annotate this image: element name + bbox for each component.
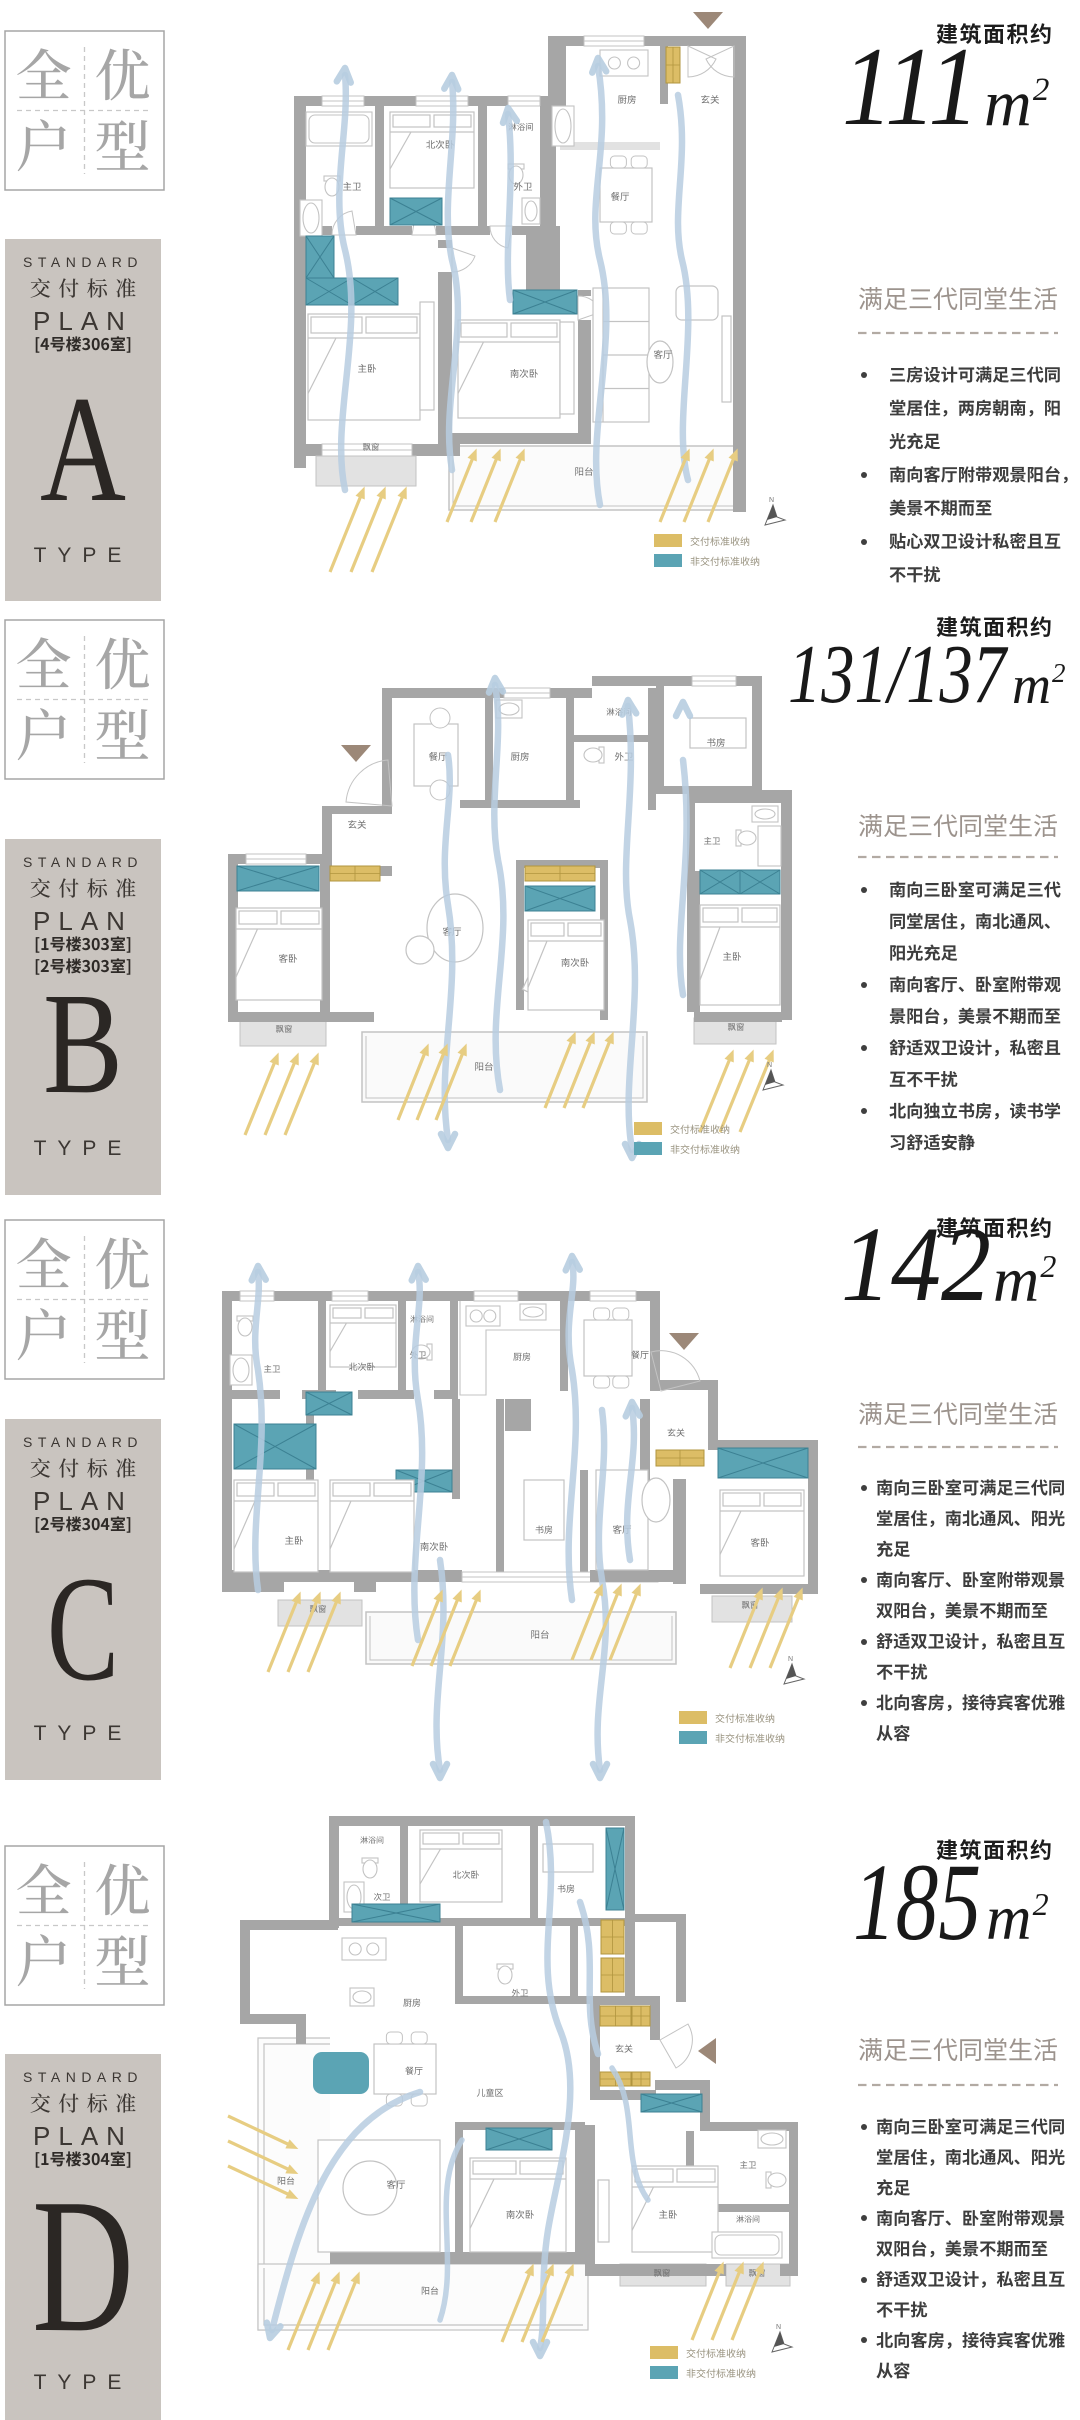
svg-text:2: 2 xyxy=(1040,1248,1056,1284)
svg-text:N: N xyxy=(769,497,774,504)
svg-text:131/137: 131/137 xyxy=(788,628,1008,721)
svg-text:STANDARD: STANDARD xyxy=(23,2069,143,2085)
svg-text:PLAN: PLAN xyxy=(33,906,133,936)
svg-text:TYPE: TYPE xyxy=(34,1137,133,1160)
svg-text:185: 185 xyxy=(853,1841,981,1963)
svg-text:111: 111 xyxy=(842,25,979,149)
svg-text:C: C xyxy=(47,1546,119,1712)
svg-text:STANDARD: STANDARD xyxy=(23,1434,143,1450)
svg-text:PLAN: PLAN xyxy=(33,2121,133,2151)
svg-text:N: N xyxy=(776,2324,781,2331)
svg-text:2: 2 xyxy=(1033,72,1050,108)
svg-text:A: A xyxy=(40,365,126,533)
svg-text:TYPE: TYPE xyxy=(34,544,133,567)
svg-text:142: 142 xyxy=(841,1206,991,1324)
svg-text:N: N xyxy=(767,1062,772,1069)
svg-text:STANDARD: STANDARD xyxy=(23,254,143,270)
svg-text:D: D xyxy=(32,2159,134,2372)
svg-text:PLAN: PLAN xyxy=(33,1486,133,1516)
svg-text:PLAN: PLAN xyxy=(33,306,133,336)
svg-text:m: m xyxy=(986,1883,1032,1953)
svg-text:TYPE: TYPE xyxy=(34,1722,133,1745)
svg-text:N: N xyxy=(788,1656,793,1663)
svg-text:B: B xyxy=(43,964,123,1124)
svg-text:STANDARD: STANDARD xyxy=(23,854,143,870)
svg-text:m: m xyxy=(984,67,1032,140)
svg-text:m: m xyxy=(993,1244,1039,1315)
svg-text:TYPE: TYPE xyxy=(34,2371,133,2394)
svg-text:m: m xyxy=(1012,655,1051,715)
svg-text:2: 2 xyxy=(1052,658,1066,688)
svg-text:2: 2 xyxy=(1033,1886,1049,1922)
